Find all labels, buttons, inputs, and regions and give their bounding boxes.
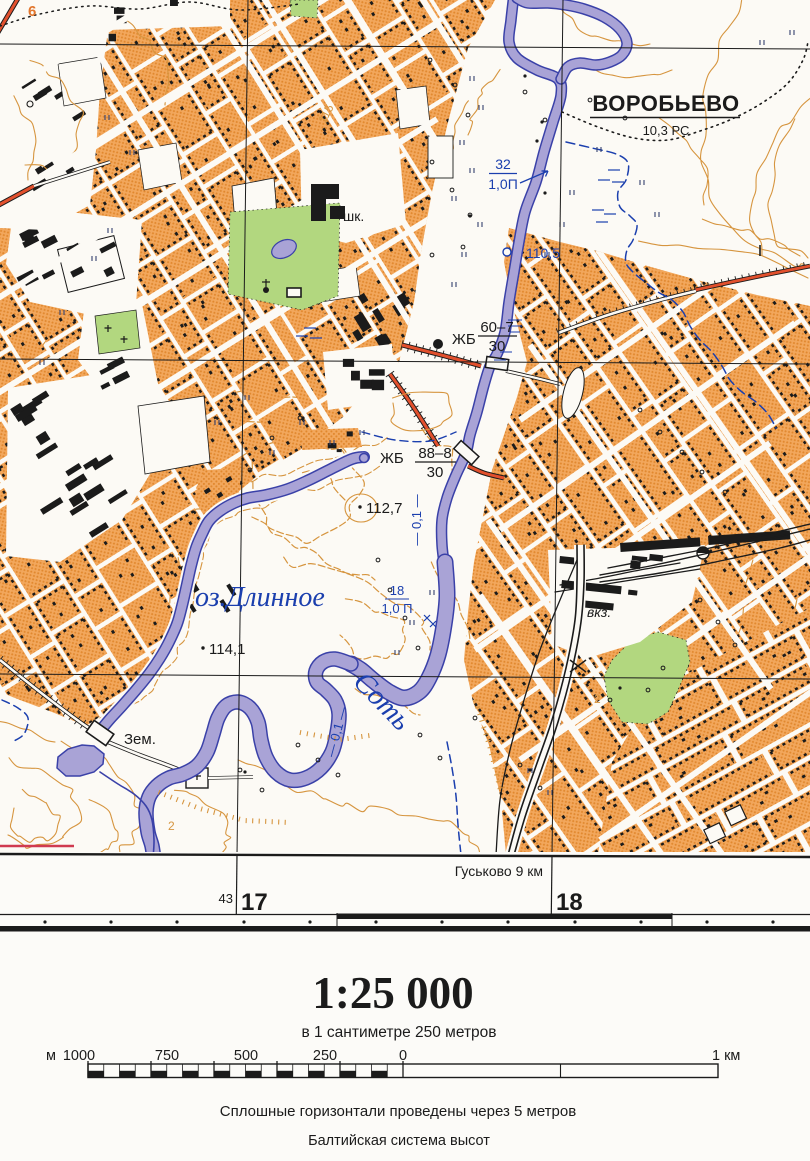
svg-text:6: 6: [28, 3, 36, 20]
svg-text:вкз.: вкз.: [587, 604, 611, 620]
svg-text:Балтийская система высот: Балтийская система высот: [308, 1133, 490, 1149]
svg-text:30: 30: [427, 464, 444, 481]
svg-text:250: 250: [313, 1048, 337, 1064]
svg-text:оз.Длинное: оз.Длинное: [195, 582, 325, 613]
svg-text:43: 43: [219, 891, 233, 906]
svg-text:18: 18: [556, 889, 583, 916]
svg-text:2: 2: [168, 819, 175, 833]
svg-text:0: 0: [399, 1048, 407, 1064]
svg-text:500: 500: [234, 1048, 258, 1064]
svg-text:18: 18: [390, 583, 404, 598]
svg-text:Зем.: Зем.: [124, 731, 156, 748]
svg-text:шк.: шк.: [343, 208, 364, 224]
svg-text:1 км: 1 км: [712, 1048, 740, 1064]
svg-text:110,5: 110,5: [526, 245, 560, 261]
svg-text:ЖБ: ЖБ: [380, 450, 404, 467]
svg-text:112,7: 112,7: [366, 500, 402, 517]
svg-text:Гуськово 9 км: Гуськово 9 км: [455, 863, 543, 879]
svg-text:м: м: [46, 1048, 56, 1064]
svg-text:Сплошные горизонтали проведены: Сплошные горизонтали проведены через 5 м…: [220, 1103, 576, 1120]
svg-text:2: 2: [594, 692, 601, 706]
svg-text:в 1 сантиметре 250 метров: в 1 сантиметре 250 метров: [301, 1024, 496, 1041]
svg-text:ВОРОБЬЕВО: ВОРОБЬЕВО: [592, 91, 739, 116]
svg-text:114,1: 114,1: [209, 641, 245, 658]
svg-text:— 0,1 —: — 0,1 —: [409, 494, 424, 545]
svg-text:ЖБ: ЖБ: [452, 331, 476, 348]
svg-text:750: 750: [155, 1048, 179, 1064]
svg-text:60–7: 60–7: [480, 319, 513, 336]
svg-text:17: 17: [241, 889, 268, 916]
svg-text:30: 30: [489, 338, 506, 355]
svg-text:1:25 000: 1:25 000: [312, 968, 473, 1018]
svg-text:88–8: 88–8: [418, 445, 451, 462]
svg-text:32: 32: [495, 156, 511, 172]
svg-text:10,3 РС: 10,3 РС: [643, 123, 690, 138]
svg-text:1000: 1000: [63, 1048, 95, 1064]
svg-text:1,0 П: 1,0 П: [381, 601, 412, 616]
svg-text:1,0П: 1,0П: [488, 176, 518, 192]
